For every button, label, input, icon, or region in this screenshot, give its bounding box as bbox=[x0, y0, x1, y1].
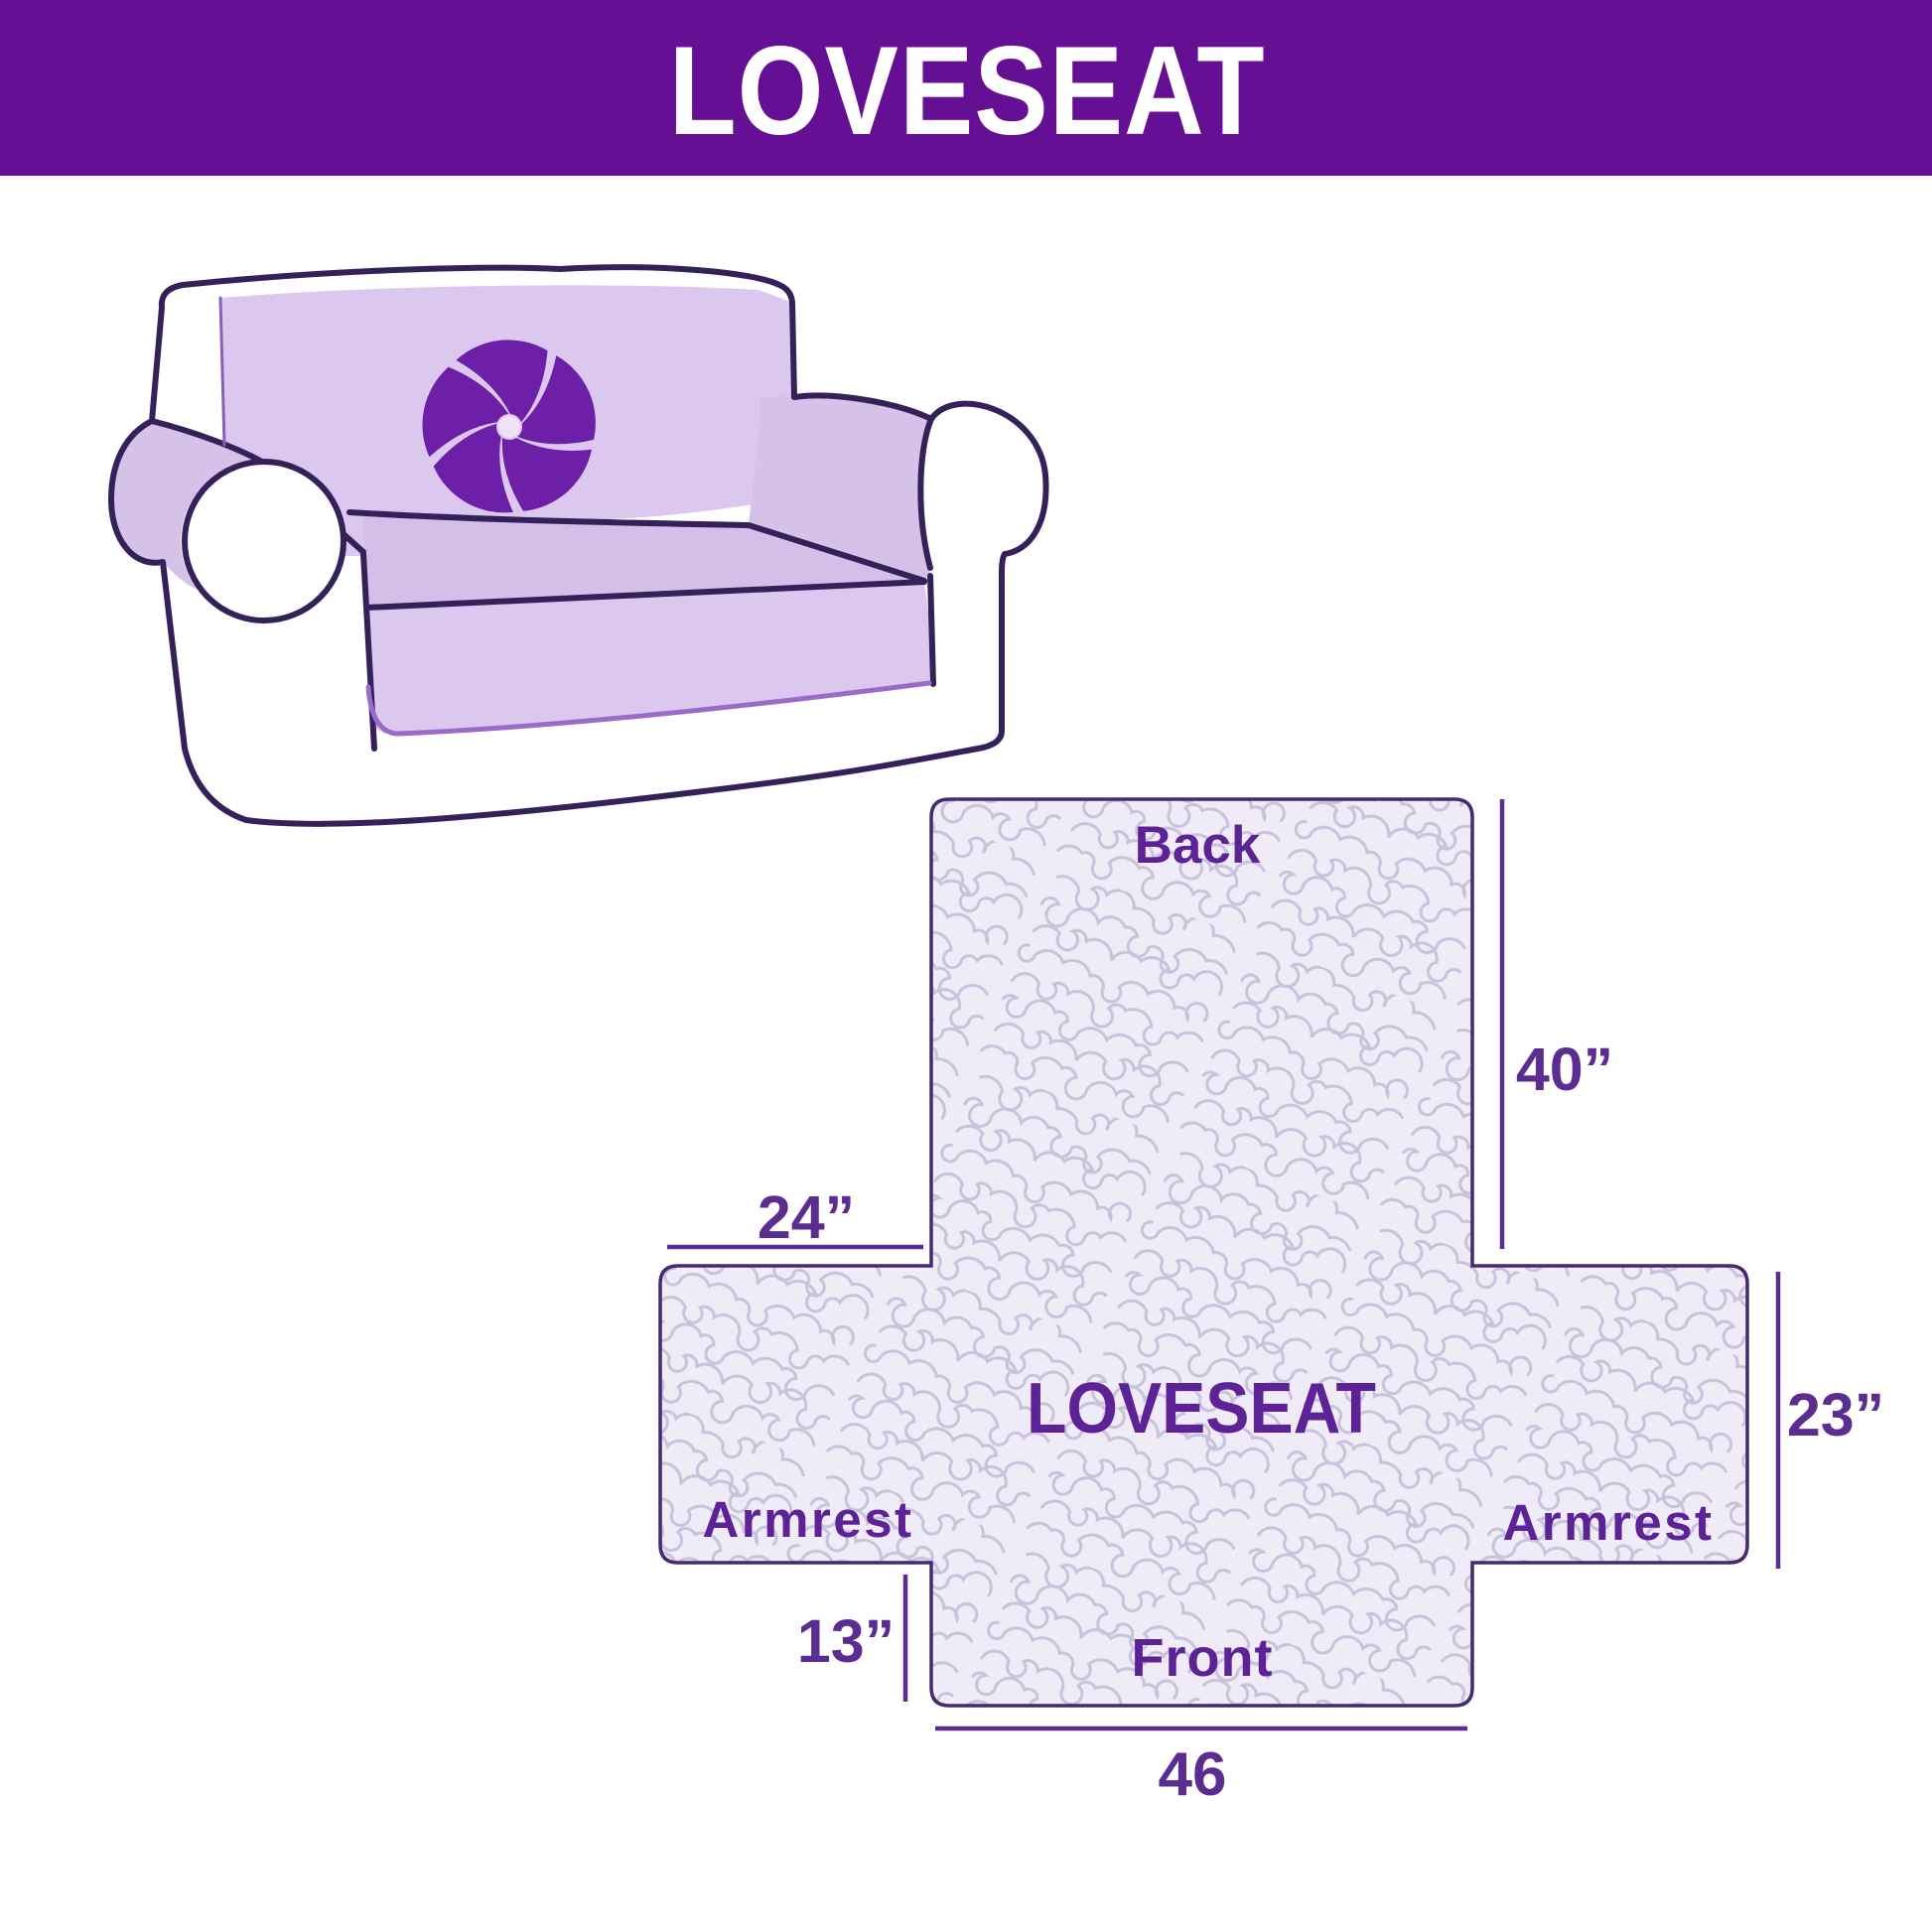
svg-text:23”: 23” bbox=[1787, 1381, 1884, 1449]
svg-text:13”: 13” bbox=[797, 1607, 895, 1675]
svg-text:Armrest: Armrest bbox=[702, 1491, 913, 1548]
svg-text:Front: Front bbox=[1132, 1628, 1274, 1688]
svg-text:LOVESEAT: LOVESEAT bbox=[1027, 1367, 1376, 1448]
svg-text:40”: 40” bbox=[1516, 1035, 1613, 1103]
svg-text:Back: Back bbox=[1135, 816, 1261, 875]
svg-text:46: 46 bbox=[1159, 1740, 1227, 1809]
svg-text:LOVESEAT: LOVESEAT bbox=[668, 21, 1265, 161]
svg-text:Armrest: Armrest bbox=[1502, 1494, 1714, 1551]
svg-text:24”: 24” bbox=[758, 1183, 855, 1251]
